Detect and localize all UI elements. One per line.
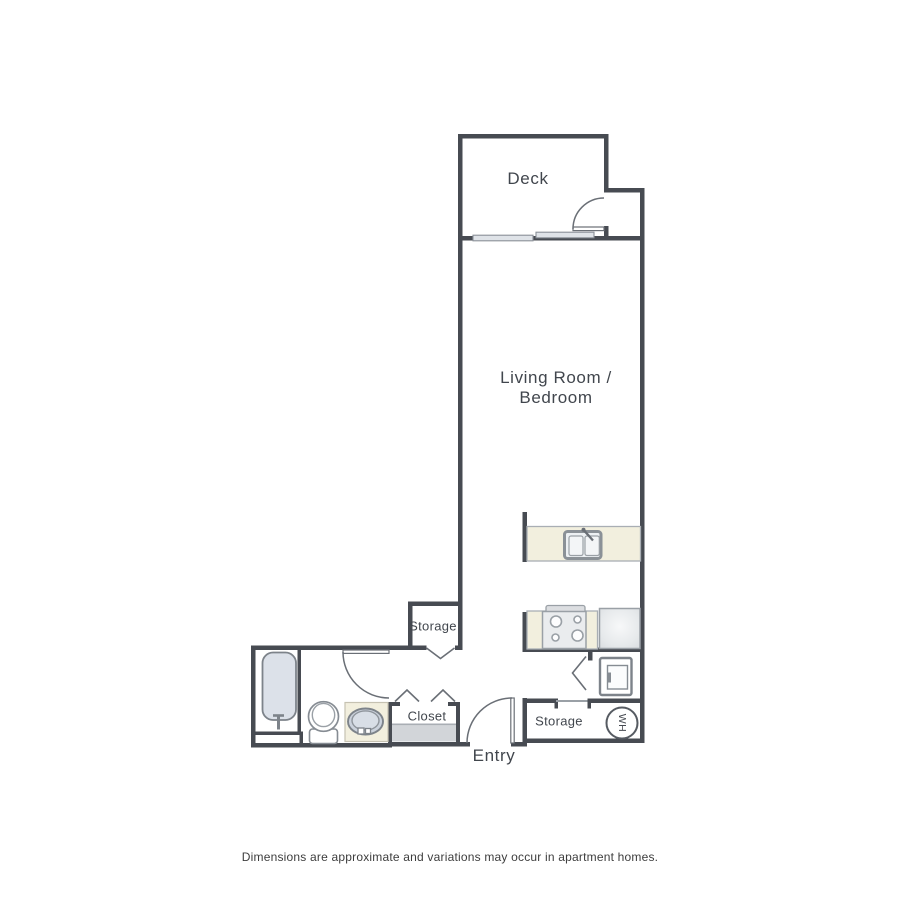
bathroom-door-leaf bbox=[343, 650, 389, 653]
stove-burner-large-2 bbox=[572, 630, 583, 641]
storage-upper-bifold-door bbox=[427, 648, 455, 659]
laundry-bifold-door bbox=[573, 657, 587, 691]
living-room-label-line1: Living Room / bbox=[500, 368, 612, 388]
bathroom-door-swing-arc bbox=[343, 652, 389, 698]
living-left-wall bbox=[458, 240, 463, 650]
closet-left-tick bbox=[388, 702, 400, 706]
stove-burner-small-2 bbox=[552, 634, 559, 641]
hall-bottom-wall bbox=[392, 742, 470, 747]
deck-label: Deck bbox=[507, 169, 548, 189]
living-room-label-line2: Bedroom bbox=[500, 388, 612, 408]
washer-dryer-handle bbox=[608, 673, 612, 683]
storage-lower-opening-line bbox=[556, 700, 590, 702]
closet-shelf-edge bbox=[392, 724, 456, 726]
bathroom-top-wall bbox=[251, 646, 427, 651]
storage-upper-top-wall bbox=[408, 602, 462, 607]
storage-lower-label: Storage bbox=[535, 714, 583, 729]
vanity-faucet-right bbox=[366, 729, 371, 734]
extension-top-wall bbox=[604, 188, 645, 193]
deck-top-wall bbox=[458, 134, 609, 139]
tub-partition-wall bbox=[298, 648, 302, 732]
entry-door-swing-arc bbox=[467, 698, 512, 743]
deck-left-wall bbox=[458, 134, 463, 240]
stove-end-wall bbox=[523, 612, 528, 652]
bathtub bbox=[263, 653, 297, 721]
kitchen bbox=[527, 527, 641, 650]
kitchen-sink-basin-left bbox=[569, 536, 583, 556]
closet-left-wall bbox=[388, 702, 392, 744]
closet-right-tick bbox=[448, 702, 460, 706]
storage-lower-top-wall-right bbox=[590, 699, 645, 704]
storage-lower-bottom-wall bbox=[523, 739, 645, 744]
tub-step-top bbox=[253, 732, 303, 736]
stove-burner-small-1 bbox=[574, 616, 581, 623]
slider-panel-left bbox=[473, 235, 533, 241]
living-room-label: Living Room / Bedroom bbox=[500, 368, 612, 408]
storage-upper-label: Storage bbox=[409, 619, 457, 634]
laundry-area: WH bbox=[600, 658, 638, 739]
closet-interior bbox=[392, 724, 456, 742]
entry-door-leaf bbox=[511, 698, 514, 743]
stove-burner-large-1 bbox=[551, 616, 562, 627]
closet-bifold-door-left bbox=[395, 690, 419, 702]
walls bbox=[251, 134, 645, 748]
closet-right-wall bbox=[456, 702, 460, 744]
floor-plan-drawing: WH bbox=[0, 0, 900, 900]
refrigerator bbox=[600, 609, 641, 649]
closet-label: Closet bbox=[408, 709, 447, 724]
doors bbox=[343, 198, 604, 743]
water-heater-label: WH bbox=[616, 714, 628, 733]
storage-upper-bottom-jamb bbox=[455, 646, 463, 651]
closet-bifold-door-right bbox=[431, 690, 455, 702]
counter-end-wall bbox=[523, 512, 528, 562]
vanity-sink-inner bbox=[352, 711, 379, 730]
closet-shelf-strip bbox=[392, 725, 456, 742]
deck-door-swing-arc bbox=[573, 198, 604, 229]
vanity-faucet-left bbox=[358, 728, 364, 734]
storage-lower-top-wall-left bbox=[523, 699, 557, 704]
deck-right-wall-upper bbox=[604, 134, 609, 192]
slider-panel-right bbox=[536, 232, 594, 238]
bathroom bbox=[263, 653, 389, 744]
floor-plan-page: WH Deck Living Room / Bedroom Storage Cl bbox=[0, 0, 900, 900]
right-exterior-wall bbox=[640, 188, 645, 743]
disclaimer-text: Dimensions are approximate and variation… bbox=[242, 850, 658, 864]
entry-label: Entry bbox=[473, 746, 516, 766]
deck-door-leaf bbox=[573, 227, 604, 231]
